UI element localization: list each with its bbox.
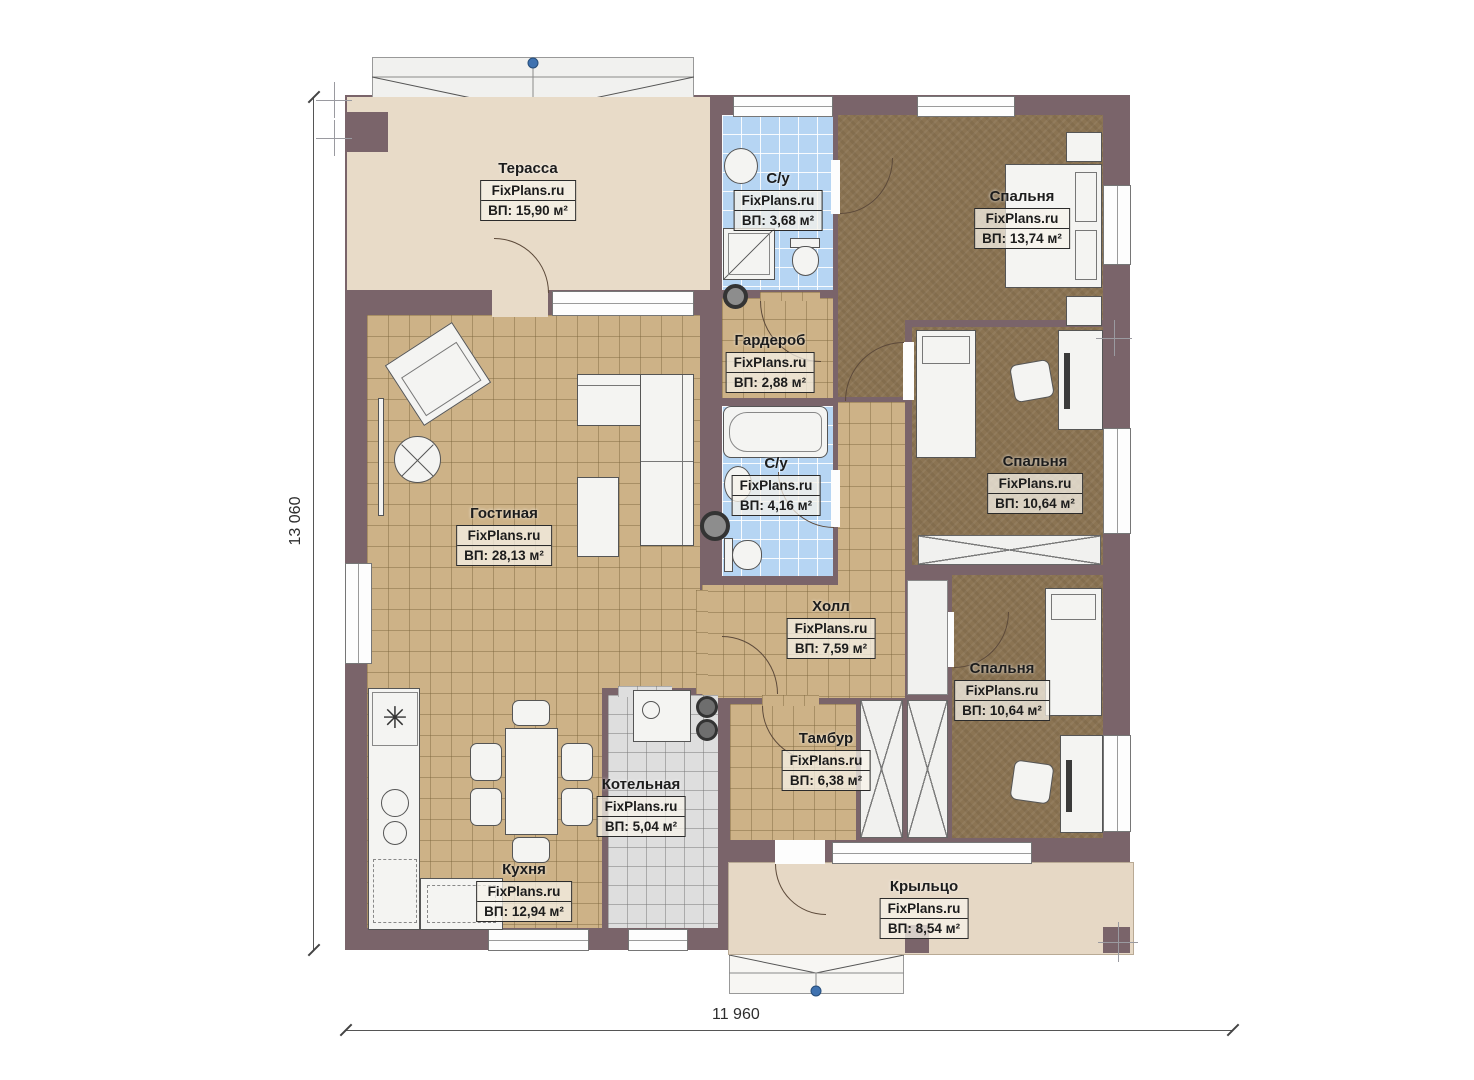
room-label-wardrobe: Гардероб FixPlans.ruВП: 2,88 м²	[726, 332, 815, 393]
closet-tambour-right	[907, 700, 948, 838]
window-terrace-wall	[552, 291, 694, 316]
room-label-bedroom3: Спальня FixPlans.ruВП: 10,64 м²	[954, 660, 1050, 721]
boiler-unit	[633, 690, 691, 742]
dining-table	[505, 728, 558, 835]
radiator	[378, 398, 384, 516]
bathtub-icon	[723, 406, 828, 458]
dim-tick	[308, 944, 321, 957]
closet-bedroom2	[918, 535, 1101, 565]
room-label-bath2: С/у FixPlans.ruВП: 4,16 м²	[732, 455, 821, 516]
washing-machine-icon	[723, 284, 748, 309]
stove-burner	[696, 719, 718, 741]
closet-niche	[907, 580, 948, 695]
bed-single	[1045, 588, 1102, 716]
water-heater-icon	[700, 511, 730, 541]
room-label-bedroom1: Спальня FixPlans.ruВП: 13,74 м²	[974, 188, 1070, 249]
dining-chair	[470, 788, 502, 826]
stove-burner	[696, 696, 718, 718]
dining-chair	[561, 788, 593, 826]
door-gap-entrance	[775, 840, 825, 864]
coffee-table	[577, 477, 619, 557]
window-kitchen	[488, 929, 589, 951]
dimension-line-bottom	[345, 1030, 1232, 1031]
window-porch-wall	[832, 842, 1032, 864]
room-label-bedroom2: Спальня FixPlans.ruВП: 10,64 м²	[987, 453, 1083, 514]
door-gap-tambour	[762, 695, 819, 706]
sofa-vertical	[640, 374, 694, 546]
window-right-bedroom1	[1103, 185, 1131, 265]
nightstand	[1066, 132, 1102, 162]
toilet-bowl	[732, 540, 762, 570]
window-top-bath	[733, 96, 833, 117]
axis-cross	[316, 120, 352, 156]
desk-chair	[1009, 359, 1055, 403]
room-label-boiler: Котельная FixPlans.ruВП: 5,04 м²	[597, 776, 686, 837]
dining-chair	[470, 743, 502, 781]
floor-plan: ✳	[0, 0, 1474, 1080]
axis-cross	[1098, 922, 1138, 962]
room-label-terrace: Терасса FixPlans.ruВП: 15,90 м²	[480, 160, 576, 221]
dimension-width-label: 11 960	[712, 1006, 760, 1024]
door-gap-wardrobe	[760, 292, 820, 301]
window-right-bedroom3	[1103, 735, 1131, 832]
kitchen-counter-left: ✳	[368, 688, 420, 930]
window-top-bedroom1	[917, 96, 1015, 117]
dining-chair	[512, 837, 550, 863]
desk	[1060, 735, 1103, 833]
axis-cross	[316, 82, 352, 118]
shower-icon	[723, 228, 775, 280]
desk-chair	[1009, 759, 1054, 804]
room-label-porch: Крыльцо FixPlans.ruВП: 8,54 м²	[880, 878, 969, 939]
window-right-bedroom2	[1103, 428, 1131, 534]
window-left-living	[345, 563, 372, 664]
door-gap-bath1	[831, 160, 840, 214]
bed-single	[916, 330, 976, 458]
dining-chair	[561, 743, 593, 781]
room-label-bath1: С/у FixPlans.ruВП: 3,68 м²	[734, 170, 823, 231]
porch-roof-outline	[729, 951, 904, 999]
window-boiler	[628, 929, 688, 951]
room-label-hall: Холл FixPlans.ruВП: 7,59 м²	[787, 598, 876, 659]
axis-cross	[1096, 320, 1132, 356]
round-table	[394, 436, 441, 483]
dimension-line-left	[313, 97, 314, 950]
dimension-height-label: 13 060	[287, 491, 305, 551]
door-gap-bedroom2	[903, 342, 914, 400]
toilet-bowl	[792, 246, 819, 276]
opening-living-hall	[696, 590, 708, 694]
dining-chair	[512, 700, 550, 726]
room-label-living: Гостиная FixPlans.ruВП: 28,13 м²	[456, 505, 552, 566]
room-label-kitchen: Кухня FixPlans.ruВП: 12,94 м²	[476, 861, 572, 922]
room-label-tambour: Тамбур FixPlans.ruВП: 6,38 м²	[782, 730, 871, 791]
